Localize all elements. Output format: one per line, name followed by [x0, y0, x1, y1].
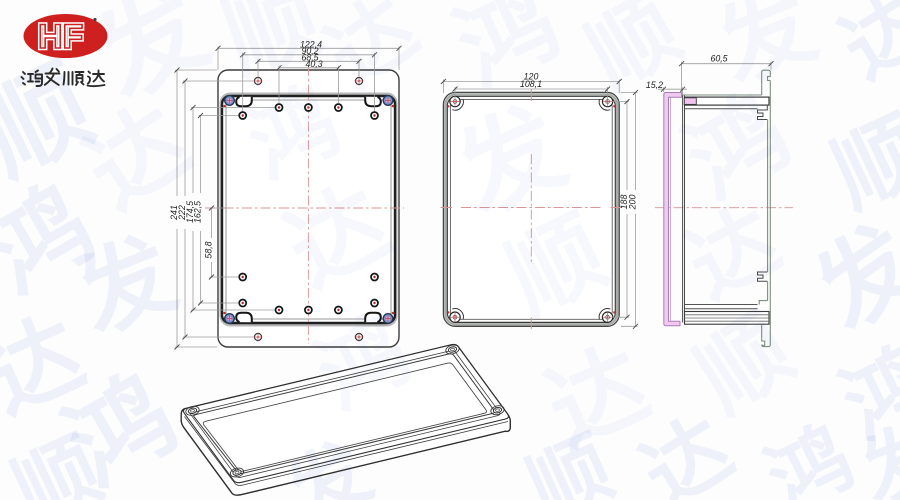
svg-text:58,8: 58,8 [204, 241, 214, 258]
svg-text:40,3: 40,3 [305, 59, 322, 69]
svg-text:200: 200 [628, 195, 638, 211]
svg-text:15,2: 15,2 [646, 80, 663, 90]
svg-text:108,1: 108,1 [520, 79, 542, 89]
svg-text:60,5: 60,5 [710, 54, 727, 64]
svg-text:162,5: 162,5 [193, 201, 203, 223]
